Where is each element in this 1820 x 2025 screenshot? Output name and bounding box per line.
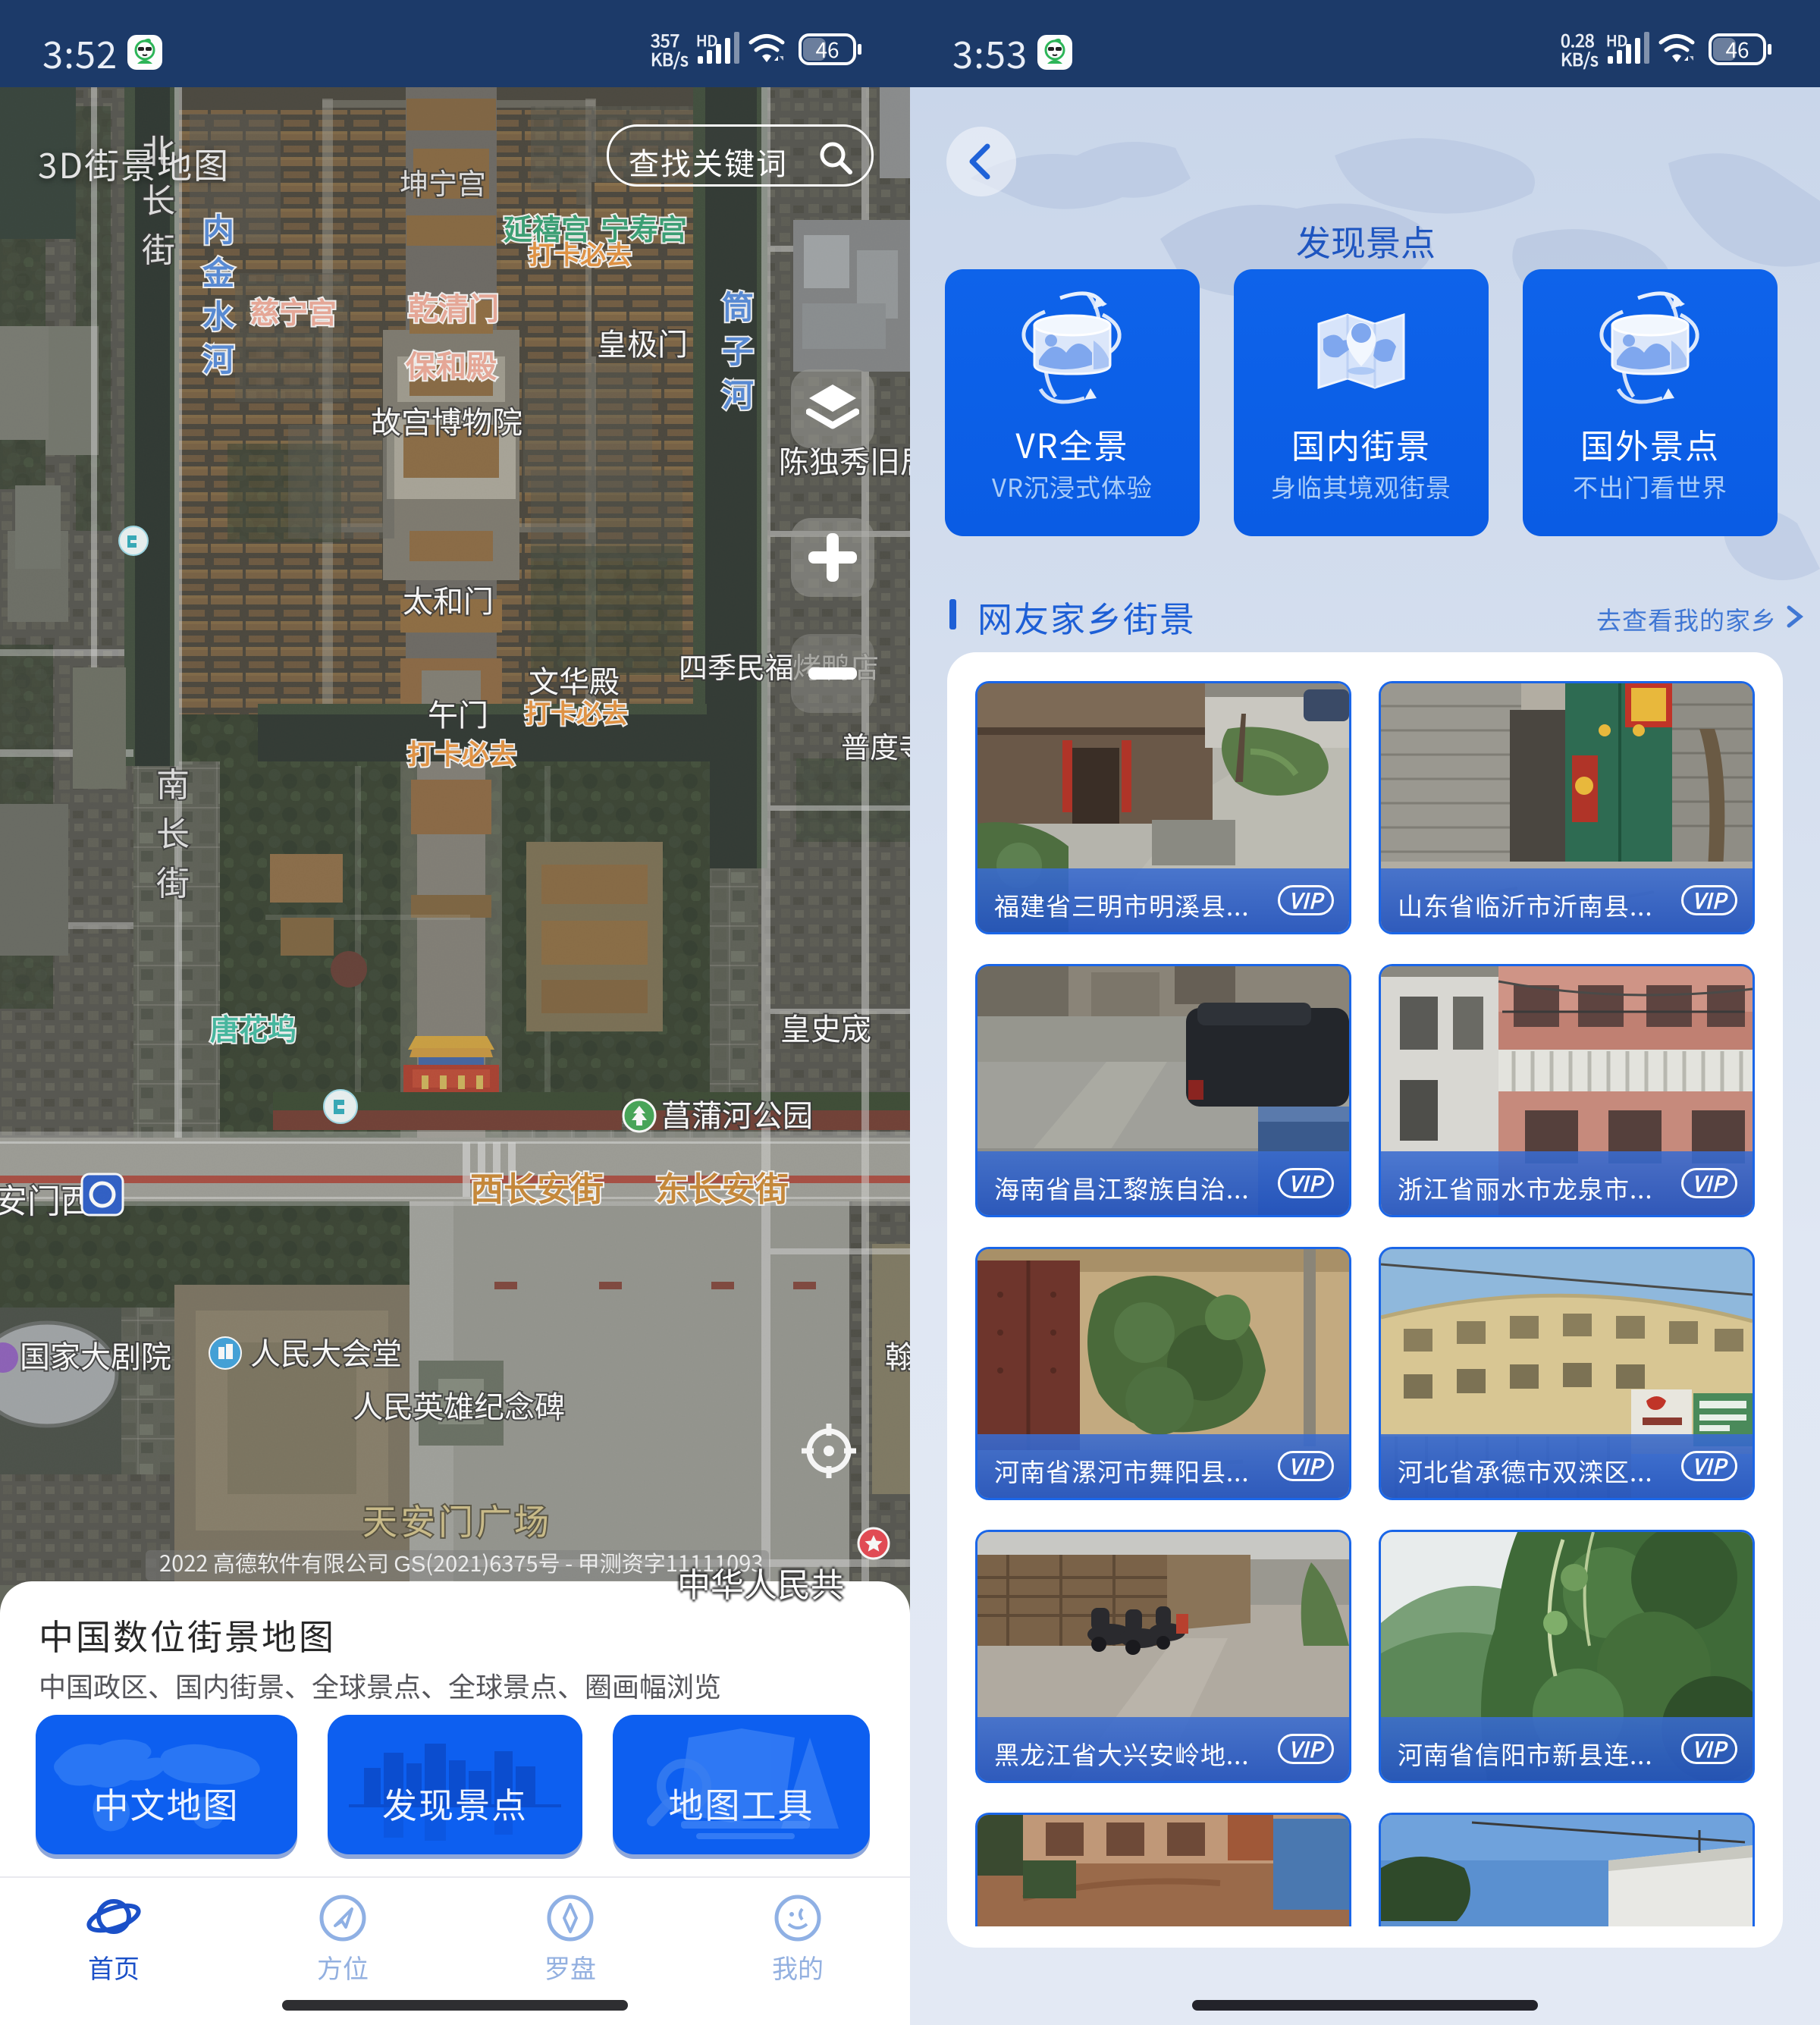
svg-text:46: 46 bbox=[1725, 34, 1749, 64]
svg-text:46: 46 bbox=[815, 34, 839, 64]
